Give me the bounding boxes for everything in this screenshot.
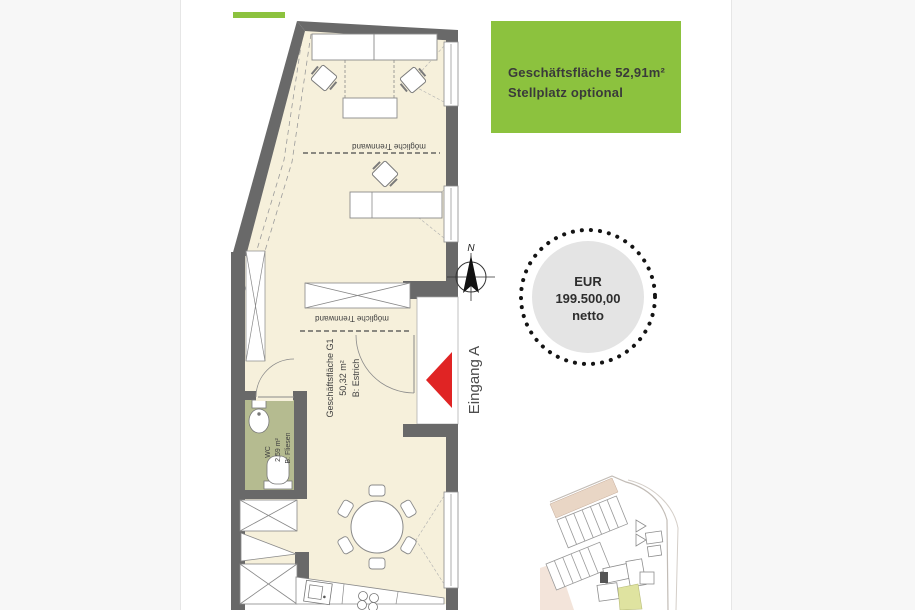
- wardrobe-box-left-upper: [240, 500, 297, 531]
- svg-text:WC: WC: [265, 446, 272, 458]
- svg-text:B: Estrich: B: Estrich: [351, 359, 361, 398]
- svg-text:Geschäftsfläche G1: Geschäftsfläche G1: [325, 338, 335, 417]
- entrance-label: Eingang A: [466, 346, 483, 414]
- wardrobe-box-left-lower: [240, 564, 297, 604]
- partition-label-1: mögliche Trennwand: [352, 142, 426, 151]
- wc-door-opening: [256, 390, 293, 401]
- floor-plan: mögliche Trennwand mögliche Trennwand Ge…: [225, 10, 497, 610]
- price-currency: EUR: [574, 274, 602, 289]
- site-dark-block: [600, 572, 608, 583]
- wall-below-entrance: [403, 424, 458, 437]
- svg-text:2,59 m²: 2,59 m²: [275, 437, 282, 461]
- site-plan: [540, 468, 698, 610]
- price-badge: EUR 199.500,00 netto: [513, 222, 663, 372]
- desk-middle: [350, 192, 442, 218]
- partition-label-2: mögliche Trennwand: [315, 314, 389, 323]
- compass-n-label: N: [467, 243, 475, 254]
- info-box-area: Geschäftsfläche 52,91m²: [508, 63, 681, 83]
- svg-text:B: Fliesen: B: Fliesen: [285, 432, 292, 463]
- shaft-element: [246, 251, 265, 361]
- site-highlight-parcel: [618, 584, 642, 610]
- price-suffix: netto: [572, 308, 604, 323]
- svg-text:50,32 m²: 50,32 m²: [338, 360, 348, 396]
- wardrobe-box-middle: [305, 283, 410, 308]
- kitchen-sink: [304, 580, 333, 604]
- price-amount: 199.500,00: [555, 291, 620, 306]
- info-box: Geschäftsfläche 52,91m² Stellplatz optio…: [491, 21, 681, 133]
- wc-washbasin: [249, 400, 269, 433]
- info-box-parking: Stellplatz optional: [508, 83, 681, 103]
- page-background: mögliche Trennwand mögliche Trennwand Ge…: [0, 0, 915, 610]
